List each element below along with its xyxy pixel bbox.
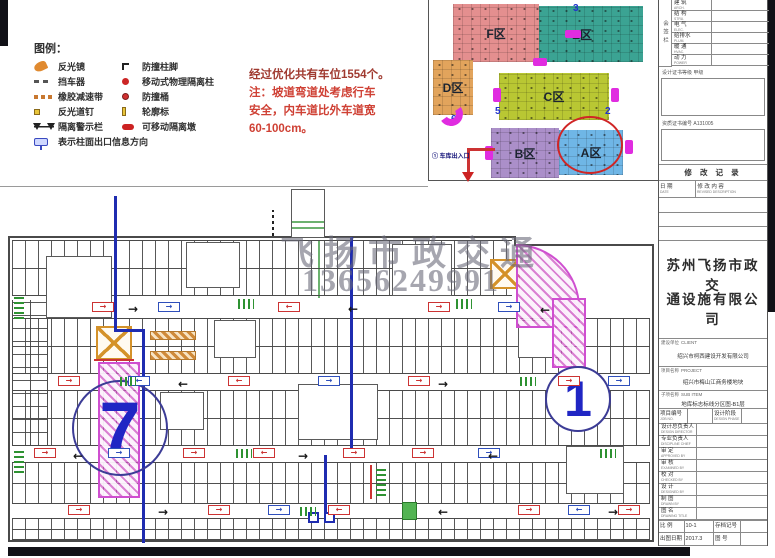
direction-sign-blue [318, 376, 340, 386]
legend-title: 图例： [34, 40, 252, 56]
speed-bump [150, 331, 196, 340]
cert-number: 资质证书编号 A131005 [662, 120, 713, 127]
core-room [214, 320, 256, 358]
direction-sign [183, 448, 205, 458]
optimization-notes: 经过优化共有车位1554个。 注：坡道弯道处考虑行车 安全，内车道比外车道宽 6… [249, 66, 431, 138]
plan-wall-bottom [8, 540, 654, 542]
legend-label: 防撞桶 [142, 90, 169, 103]
direction-sign [343, 448, 365, 458]
scale-value: 10-1 [686, 523, 712, 529]
dashed-mark [272, 210, 274, 236]
green-stall [402, 502, 417, 520]
legend-label: 反光道钉 [58, 105, 122, 118]
traffic-arrow [540, 304, 550, 316]
sheet-right-edge [768, 0, 775, 312]
signature-row: 动 力POWER [672, 55, 769, 66]
company-name: 通设施有限公司 [659, 288, 767, 328]
crosswalk [238, 299, 254, 309]
core-room [298, 384, 378, 440]
direction-sign-blue [268, 505, 290, 515]
route-line [324, 455, 327, 514]
traffic-arrow [128, 303, 138, 315]
direction-sign-blue [158, 302, 180, 312]
zone-c: C区 [499, 73, 609, 120]
revision-title: 修 改 记 录 [659, 164, 767, 180]
traffic-arrow [158, 506, 168, 518]
zone-label: F区 [486, 25, 505, 42]
road-stud-icon [34, 109, 40, 115]
legend-label: 反光镜 [58, 60, 122, 73]
signature-row: 给排水PLUM. [672, 33, 769, 44]
sheet-bottom-edge [8, 547, 690, 556]
crosswalk [236, 449, 252, 458]
ramp-connector [533, 58, 547, 66]
exit-info-icon [34, 138, 48, 146]
signature-row: 结 构STRU. [672, 11, 769, 22]
date-row: 出图日期 2017.3 图 号 [659, 533, 767, 546]
profile-marker-icon [122, 107, 126, 116]
note-line: 60-100cm。 [249, 120, 431, 138]
zone-label: C区 [544, 88, 565, 105]
signature-column-title: 会签栏 [661, 20, 669, 46]
legend-label: 移动式物理隔离柱 [142, 75, 214, 88]
field-row: 校 对CHECKED BY [659, 472, 767, 484]
client-label: 建设单位CLIENT [661, 340, 697, 346]
legend-label: 防撞柱脚 [142, 60, 178, 73]
traffic-arrow [73, 450, 83, 462]
corner-guard-icon [122, 63, 129, 70]
direction-sign [92, 302, 114, 312]
zone-f: F区 [453, 4, 539, 62]
scale-row: 比 例 10-1 存档记号 [659, 520, 767, 533]
direction-sign [408, 376, 430, 386]
direction-sign [58, 376, 80, 386]
signature-column: 会签栏 [659, 0, 672, 67]
field-row: 审 定APPROVED BY [659, 448, 767, 460]
traffic-arrow [438, 378, 448, 390]
core-room [186, 242, 240, 288]
traffic-arrow [178, 378, 188, 390]
ramp-number-2: 2 [605, 106, 611, 117]
field-row: 审 核EXAMINED BY [659, 460, 767, 472]
zone-label: B区 [515, 145, 536, 162]
speed-bump [150, 351, 196, 360]
direction-sign [428, 302, 450, 312]
project-label: 项目名称PROJECT [661, 368, 702, 374]
legend-label: 隔离警示栏 [58, 120, 122, 133]
direction-sign [558, 376, 580, 386]
project-value: 绍兴市梅山江商务楼地块 [659, 378, 767, 386]
signature-row: 电 气ELEC. [672, 22, 769, 33]
field-row: 制 图DRAWN BY [659, 496, 767, 508]
legend-row: 橡胶减速带 防撞桶 [34, 89, 252, 104]
field-row: 设计总负责人DESIGN DIRECTOR [659, 424, 767, 436]
entrance-arrow [467, 148, 495, 151]
speed-bump-icon [34, 95, 52, 99]
ramp-number-5: 5 [495, 106, 501, 117]
legend-row: 挡车器 移动式物理隔离柱 [34, 74, 252, 89]
direction-sign [278, 302, 300, 312]
signature-row: 暖 通HVAC. [672, 44, 769, 55]
barrier-line [370, 465, 372, 499]
direction-sign [618, 505, 640, 515]
field-row: 设 计DESIGNED BY [659, 484, 767, 496]
drawing-title-row: 图 名DRAWING TITLE [659, 508, 767, 520]
crash-barrel-icon [122, 93, 129, 100]
ramp-hatch-right [552, 298, 586, 368]
crosswalk [120, 377, 136, 386]
ramp-number-3: 3 [573, 3, 579, 14]
direction-sign [412, 448, 434, 458]
direction-sign [228, 376, 250, 386]
zone-b: B区 [491, 128, 559, 178]
route-line [114, 196, 117, 332]
watermark-phone: 13656249991 [302, 262, 500, 299]
crosswalk [300, 507, 316, 516]
plan-wall-left [8, 236, 10, 542]
direction-sign [68, 505, 90, 515]
isolation-post-icon [122, 78, 129, 85]
highlight-ellipse [557, 116, 623, 174]
mirror-icon [33, 60, 49, 74]
legend-row: 反光道钉 轮廓标 [34, 104, 252, 119]
ramp-connector [565, 30, 581, 38]
revision-header: 日 期DATE 修 改 内 容REVISED DESCRIPTION [659, 180, 767, 198]
traffic-arrow [348, 303, 358, 315]
movable-pier-icon [122, 124, 134, 130]
crosswalk [376, 466, 386, 496]
date-value: 2017.3 [686, 536, 712, 542]
traffic-arrow [298, 450, 308, 462]
warning-rail-icon [34, 123, 54, 131]
drawing-sheet: 图例： 反光镜 防撞柱脚 挡车器 移动式物理隔离柱 橡胶减速带 防撞桶 反光道钉… [0, 0, 775, 558]
traffic-arrow [608, 506, 618, 518]
crosswalk [14, 297, 24, 319]
note-line: 安全，内车道比外车道宽 [249, 102, 431, 120]
zone-label: D区 [443, 79, 464, 96]
direction-sign [208, 505, 230, 515]
subitem-label: 子项名称SUB ITEM [661, 392, 702, 398]
direction-sign-blue [568, 505, 590, 515]
sheet-corner-mark [0, 0, 8, 46]
direction-sign [34, 448, 56, 458]
direction-sign-blue [498, 302, 520, 312]
cert-box [661, 78, 765, 116]
legend-label: 表示柱面出口信息方向 [58, 135, 148, 148]
note-line: 经过优化共有车位1554个。 [249, 66, 431, 84]
ramp-connector [625, 140, 633, 154]
legend-label: 橡胶减速带 [58, 90, 122, 103]
direction-sign [518, 505, 540, 515]
title-block: 会签栏 建 筑ARCH. 结 构STRU. 电 气ELEC. 给排水PLUM. … [658, 0, 768, 546]
cert-grade: 设计证书等级 甲级 [662, 69, 703, 76]
subitem-value: 地库标志标线分区图-B1层 [659, 400, 767, 408]
wheel-stop-icon [34, 80, 48, 83]
entrance-arrow-head [462, 172, 474, 182]
ramp-stripe [292, 221, 324, 223]
ramp-connector [611, 88, 619, 102]
legend-label: 可移动隔离墩 [142, 120, 196, 133]
legend-row: 隔离警示栏 可移动隔离墩 [34, 119, 252, 134]
zone-key-map: E区 F区 D区 C区 B区 A区 3 6 5 2 ① 车库出入口 [428, 0, 658, 181]
crosswalk [520, 377, 536, 386]
direction-sign-blue [108, 448, 130, 458]
zone-e: E区 [521, 6, 643, 62]
legend-label: 挡车器 [58, 75, 122, 88]
route-line [114, 329, 145, 332]
cert-box [661, 129, 765, 161]
ramp-number-circle-7: 7 [72, 380, 168, 476]
entrance-label: ① 车库出入口 [432, 151, 470, 160]
header-divider [0, 186, 428, 187]
legend-row: 反光镜 防撞柱脚 [34, 59, 252, 74]
direction-sign [328, 505, 350, 515]
ramp-edge-line [94, 359, 134, 361]
traffic-arrow [488, 450, 498, 462]
field-row: 专业负责人DISCIPLINE CHIEF [659, 436, 767, 448]
direction-sign-blue [608, 376, 630, 386]
crosswalk [600, 449, 616, 458]
crosswalk [456, 299, 472, 309]
signature-row: 建 筑ARCH. [672, 0, 769, 11]
ramp-connector [493, 88, 501, 102]
field-row: 项目编号JOB NO. 设计阶段DESIGN PHASE [659, 408, 767, 424]
parking-stall-band [12, 300, 48, 446]
legend-footer-row: 表示柱面出口信息方向 [34, 134, 252, 149]
legend: 图例： 反光镜 防撞柱脚 挡车器 移动式物理隔离柱 橡胶减速带 防撞桶 反光道钉… [34, 40, 252, 149]
traffic-arrow [438, 506, 448, 518]
plan-wall-right [652, 244, 654, 542]
crosswalk [14, 451, 24, 473]
note-line: 注：坡道弯道处考虑行车 [249, 84, 431, 102]
legend-label: 轮廓标 [142, 105, 169, 118]
direction-sign [253, 448, 275, 458]
client-value: 绍兴市柯西建设开发有限公司 [659, 352, 767, 360]
